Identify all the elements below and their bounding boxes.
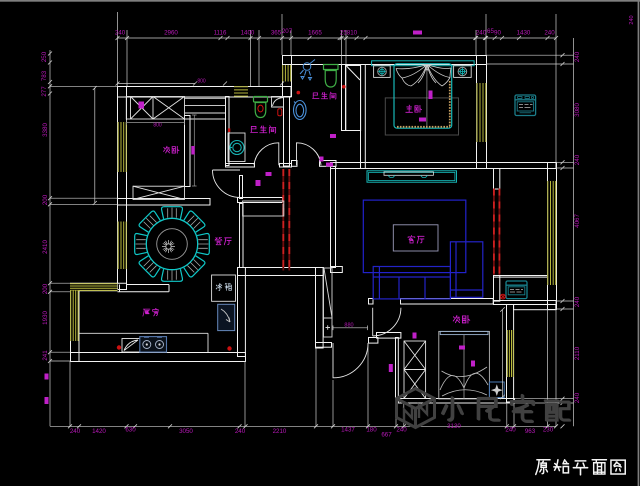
- svg-text:240: 240: [115, 30, 126, 37]
- svg-text:25810: 25810: [340, 30, 358, 37]
- svg-text:667: 667: [381, 432, 392, 439]
- svg-text:800: 800: [153, 123, 162, 129]
- svg-text:3380: 3380: [42, 123, 49, 137]
- svg-text:240: 240: [544, 30, 555, 37]
- svg-text:250: 250: [41, 51, 48, 62]
- svg-text:1665: 1665: [308, 30, 322, 37]
- svg-text:240: 240: [629, 15, 635, 24]
- svg-text:1930: 1930: [42, 311, 49, 325]
- svg-text:3080: 3080: [574, 103, 581, 117]
- svg-text:240: 240: [235, 428, 246, 435]
- svg-text:240: 240: [396, 427, 407, 434]
- svg-text:2960: 2960: [164, 30, 178, 37]
- svg-text:240: 240: [574, 392, 581, 403]
- svg-text:180: 180: [366, 427, 377, 434]
- svg-text:240: 240: [574, 296, 581, 307]
- svg-text:240: 240: [574, 154, 581, 165]
- svg-text:1437: 1437: [341, 427, 355, 434]
- svg-text:1430: 1430: [517, 30, 531, 37]
- svg-text:4067: 4067: [574, 214, 581, 228]
- svg-text:2410: 2410: [42, 240, 49, 254]
- svg-text:1116: 1116: [214, 30, 227, 37]
- svg-text:241: 241: [42, 350, 49, 361]
- svg-text:800: 800: [197, 79, 206, 85]
- svg-text:3050: 3050: [179, 428, 193, 435]
- svg-text:365: 365: [271, 30, 282, 37]
- svg-text:200: 200: [42, 283, 49, 294]
- svg-text:240: 240: [70, 428, 81, 435]
- svg-text:783: 783: [41, 70, 48, 81]
- svg-text:963: 963: [525, 428, 536, 435]
- svg-text:230: 230: [543, 427, 554, 434]
- svg-text:90: 90: [494, 30, 501, 37]
- svg-text:207: 207: [282, 28, 293, 35]
- svg-text:277: 277: [41, 86, 48, 97]
- svg-text:200: 200: [42, 194, 49, 205]
- svg-text:1400: 1400: [241, 30, 255, 37]
- svg-text:240: 240: [505, 427, 516, 434]
- svg-text:880: 880: [344, 323, 353, 329]
- svg-text:240: 240: [476, 30, 487, 37]
- svg-text:3130: 3130: [447, 423, 461, 430]
- svg-text:630: 630: [125, 427, 136, 434]
- svg-text:2210: 2210: [273, 428, 287, 435]
- svg-text:1420: 1420: [92, 428, 106, 435]
- svg-text:2110: 2110: [574, 346, 581, 360]
- svg-text:240: 240: [574, 51, 581, 62]
